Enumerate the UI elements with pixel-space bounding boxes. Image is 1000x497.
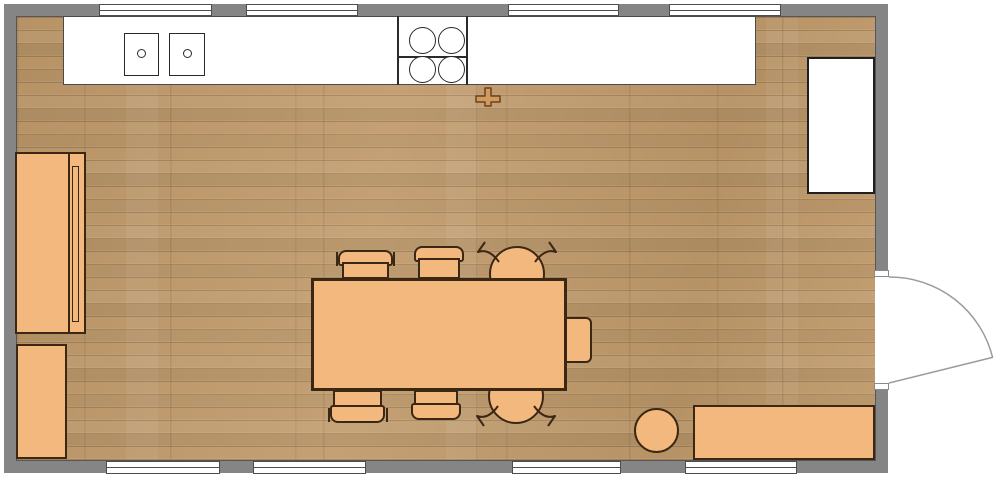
door-jamb-top xyxy=(874,270,889,277)
stool[interactable] xyxy=(634,408,679,453)
window-top-3[interactable] xyxy=(508,4,619,16)
window-bottom-2[interactable] xyxy=(253,461,366,474)
chair-bottom-1-leg-left xyxy=(328,408,330,422)
end-chair[interactable] xyxy=(565,317,592,363)
chair-bottom-1-back[interactable] xyxy=(330,405,385,423)
window-glass-line xyxy=(100,10,211,12)
window-glass-line xyxy=(509,10,618,12)
chair-top-2-seat[interactable] xyxy=(418,258,460,279)
cooktop-right-edge xyxy=(466,16,468,85)
window-top-1[interactable] xyxy=(99,4,212,16)
window-glass-line xyxy=(247,10,357,12)
refrigerator[interactable] xyxy=(807,57,875,194)
sink-drain-left xyxy=(137,49,146,58)
door-swing[interactable] xyxy=(889,277,993,383)
window-bottom-1[interactable] xyxy=(106,461,220,474)
cooktop-burner-2[interactable] xyxy=(438,27,465,54)
cooktop-left-edge xyxy=(397,16,399,85)
dining-table[interactable] xyxy=(311,278,567,391)
cooktop-burner-4[interactable] xyxy=(438,56,465,83)
chair-top-1-leg-right xyxy=(393,252,395,266)
chair-bottom-1-leg-right xyxy=(386,408,388,422)
window-top-4[interactable] xyxy=(669,4,781,16)
window-bottom-3[interactable] xyxy=(512,461,621,474)
cooktop-burner-1[interactable] xyxy=(409,27,436,54)
window-glass-line xyxy=(686,467,796,469)
window-glass-line xyxy=(513,467,620,469)
window-top-2[interactable] xyxy=(246,4,358,16)
door-opening xyxy=(875,277,889,383)
window-glass-line xyxy=(107,467,219,469)
floor-plan-canvas xyxy=(0,0,1000,497)
cabinet[interactable] xyxy=(16,344,67,459)
window-bottom-4[interactable] xyxy=(685,461,797,474)
wardrobe-door-panel xyxy=(72,166,79,322)
sideboard[interactable] xyxy=(693,405,875,460)
window-glass-line xyxy=(670,10,780,12)
wardrobe-divider xyxy=(68,152,70,334)
sink-drain-right xyxy=(183,49,192,58)
chair-top-1-leg-left xyxy=(336,252,338,266)
chair-top-1-seat[interactable] xyxy=(342,262,389,279)
cooktop-burner-3[interactable] xyxy=(409,56,436,83)
chair-bottom-2-back[interactable] xyxy=(411,403,461,420)
window-glass-line xyxy=(254,467,365,469)
door-jamb-bottom xyxy=(874,383,889,390)
